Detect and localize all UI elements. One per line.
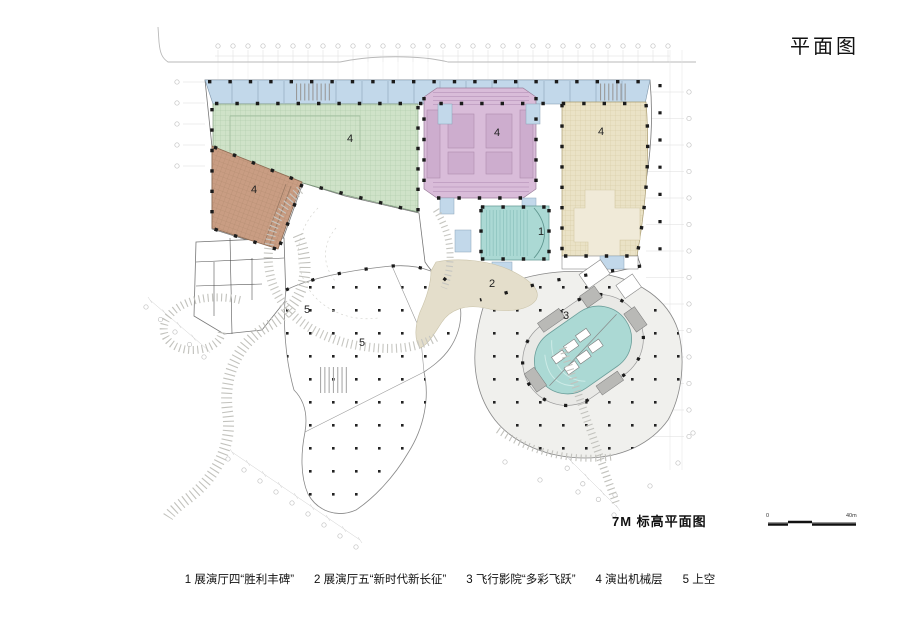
region-label-void-5a: 5 bbox=[304, 304, 310, 316]
region-label-hall-tan: 4 bbox=[598, 126, 604, 138]
region-label-theater-1: 1 bbox=[538, 226, 544, 238]
region-label-hall-green: 4 bbox=[347, 133, 353, 145]
legend-item-1: 1 展演厅四“胜利丰碑” bbox=[185, 571, 294, 587]
floor-plan-page: 0 40m 4 4 4 4 1 2 3 5 5 平面图 7M 标高平面图 1 展… bbox=[0, 0, 900, 636]
region-label-hall-purple: 4 bbox=[494, 127, 500, 139]
scale-start-label: 0 bbox=[766, 513, 769, 519]
page-title: 平面图 bbox=[790, 30, 859, 59]
plan-caption: 7M 标高平面图 bbox=[612, 511, 707, 530]
scale-bar: 0 40m bbox=[766, 513, 857, 525]
region-label-void-5b: 5 bbox=[359, 337, 365, 349]
site-boundary-line bbox=[158, 27, 696, 62]
region-label-theater-3: 3 bbox=[563, 310, 569, 322]
region-label-hall-brown: 4 bbox=[251, 184, 257, 196]
scale-end-label: 40m bbox=[846, 513, 857, 519]
legend-item-2: 2 展演厅五“新时代新长征” bbox=[314, 571, 446, 587]
legend-item-5: 5 上空 bbox=[683, 571, 716, 587]
legend: 1 展演厅四“胜利丰碑” 2 展演厅五“新时代新长征” 3 飞行影院“多彩飞跃”… bbox=[185, 571, 715, 587]
legend-item-3: 3 飞行影院“多彩飞跃” bbox=[466, 571, 575, 587]
region-label-hall-2: 2 bbox=[489, 278, 495, 290]
floor-plan-canvas: 0 40m bbox=[0, 0, 900, 636]
legend-item-4: 4 演出机械层 bbox=[596, 571, 663, 587]
